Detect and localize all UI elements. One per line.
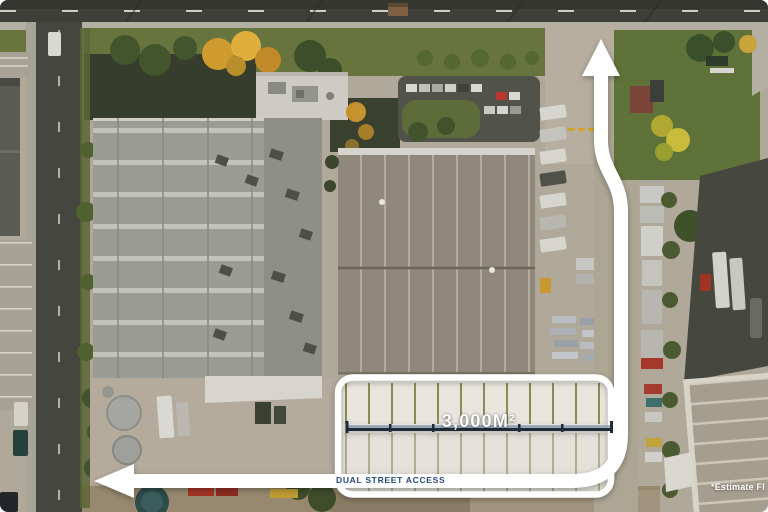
area-label: 3,000M²	[400, 411, 558, 432]
annotation-overlay	[0, 0, 768, 512]
aerial-property-photo: 3,000M² DUAL STREET ACCESS *Estimate Fl	[0, 0, 768, 512]
estimate-footnote: *Estimate Fl	[711, 482, 765, 492]
arrow-head-up-icon	[582, 39, 620, 76]
dual-street-access-label: DUAL STREET ACCESS	[336, 475, 445, 485]
arrow-head-left-icon	[94, 464, 134, 498]
